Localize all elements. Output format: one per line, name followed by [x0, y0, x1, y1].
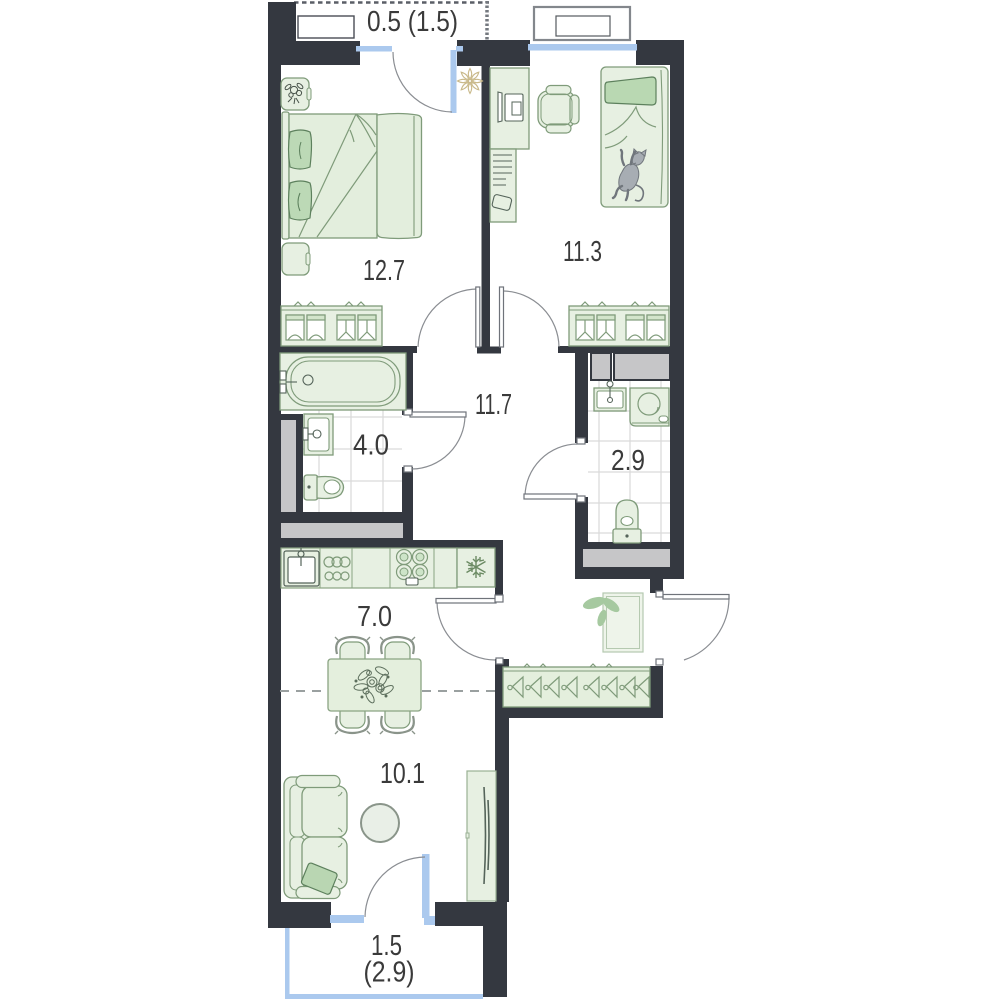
svg-text:7.0: 7.0 [357, 601, 392, 633]
svg-text:4.0: 4.0 [353, 430, 389, 462]
svg-text:10.1: 10.1 [380, 758, 425, 790]
svg-text:11.7: 11.7 [475, 389, 512, 421]
svg-text:0.5 (1.5): 0.5 (1.5) [367, 6, 458, 38]
svg-text:(2.9): (2.9) [364, 957, 415, 989]
svg-text:2.9: 2.9 [611, 445, 645, 477]
svg-text:12.7: 12.7 [363, 255, 405, 287]
svg-text:11.3: 11.3 [563, 236, 602, 268]
